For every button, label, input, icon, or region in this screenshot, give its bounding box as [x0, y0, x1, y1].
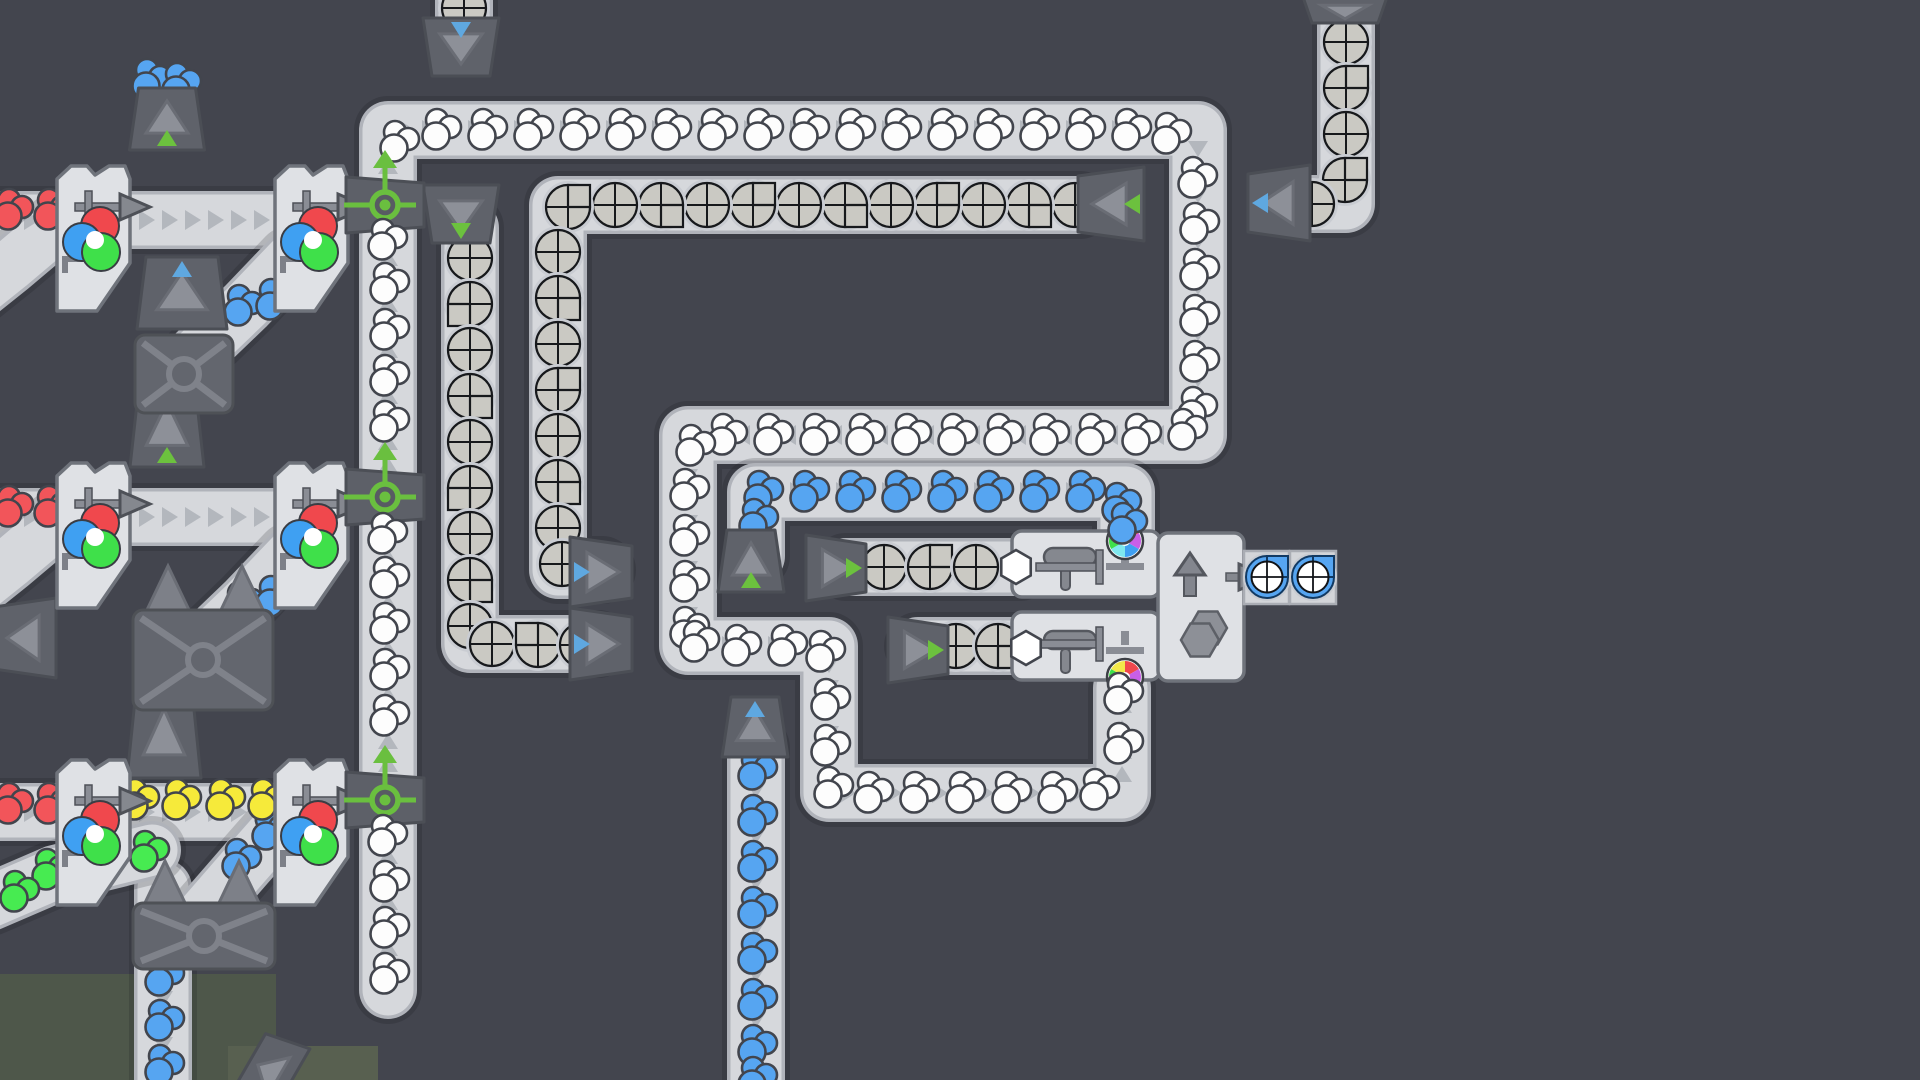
shape-item-circle [532, 410, 584, 462]
underground-belt[interactable] [1078, 167, 1144, 241]
shape-item-circle [444, 462, 496, 514]
underground-belt[interactable] [718, 530, 784, 592]
belt-crossing[interactable] [135, 335, 233, 413]
shape-item-circle [681, 179, 733, 231]
shape-item-circle [635, 179, 687, 231]
shape-item-circle [532, 272, 584, 324]
shape-item-circle [444, 508, 496, 560]
shape-item-circle [444, 416, 496, 468]
shape-item-circle [532, 318, 584, 370]
shape-item-circle [444, 324, 496, 376]
underground-belt[interactable] [137, 257, 227, 329]
shape-item-circle [865, 179, 917, 231]
shape-item-circle [904, 541, 956, 593]
underground-belt[interactable] [423, 18, 499, 76]
shape-item-circle [819, 179, 871, 231]
underground-belt[interactable] [570, 608, 632, 680]
stacked-shape-item [1243, 553, 1291, 601]
shape-item-circle [1320, 108, 1372, 160]
shape-item-circle [532, 364, 584, 416]
shape-item-hexagon [1001, 550, 1030, 584]
game-canvas[interactable] [0, 0, 1920, 1080]
belt-crossing[interactable] [133, 610, 273, 710]
shape-item-circle [466, 618, 518, 670]
shape-item-circle [542, 181, 594, 233]
underground-belt[interactable] [570, 537, 632, 607]
shape-item-circle [532, 456, 584, 508]
shape-item-circle [773, 179, 825, 231]
painter[interactable] [1012, 523, 1160, 597]
shape-item-circle [1003, 179, 1055, 231]
shape-item-circle [589, 179, 641, 231]
shape-item-circle [532, 226, 584, 278]
underground-belt[interactable] [1248, 165, 1310, 241]
underground-belt[interactable] [806, 535, 866, 601]
underground-belt[interactable] [722, 697, 788, 757]
shape-item-circle [444, 278, 496, 330]
underground-belt[interactable] [1303, 0, 1387, 23]
game-viewport[interactable] [0, 0, 1920, 1080]
shape-item-circle [444, 554, 496, 606]
shape-item-circle [444, 370, 496, 422]
stacked-shape-item [1289, 553, 1337, 601]
shape-item-circle [911, 179, 963, 231]
belt-crossing[interactable] [133, 903, 275, 969]
underground-belt[interactable] [888, 617, 948, 683]
shape-item-circle [950, 541, 1002, 593]
shape-item-circle [957, 179, 1009, 231]
shape-item-circle [727, 179, 779, 231]
underground-belt[interactable] [0, 598, 56, 678]
shape-item-circle [1320, 62, 1372, 114]
underground-belt[interactable] [130, 88, 205, 150]
shape-item-hexagon [1011, 631, 1040, 665]
underground-belt[interactable] [423, 185, 499, 243]
